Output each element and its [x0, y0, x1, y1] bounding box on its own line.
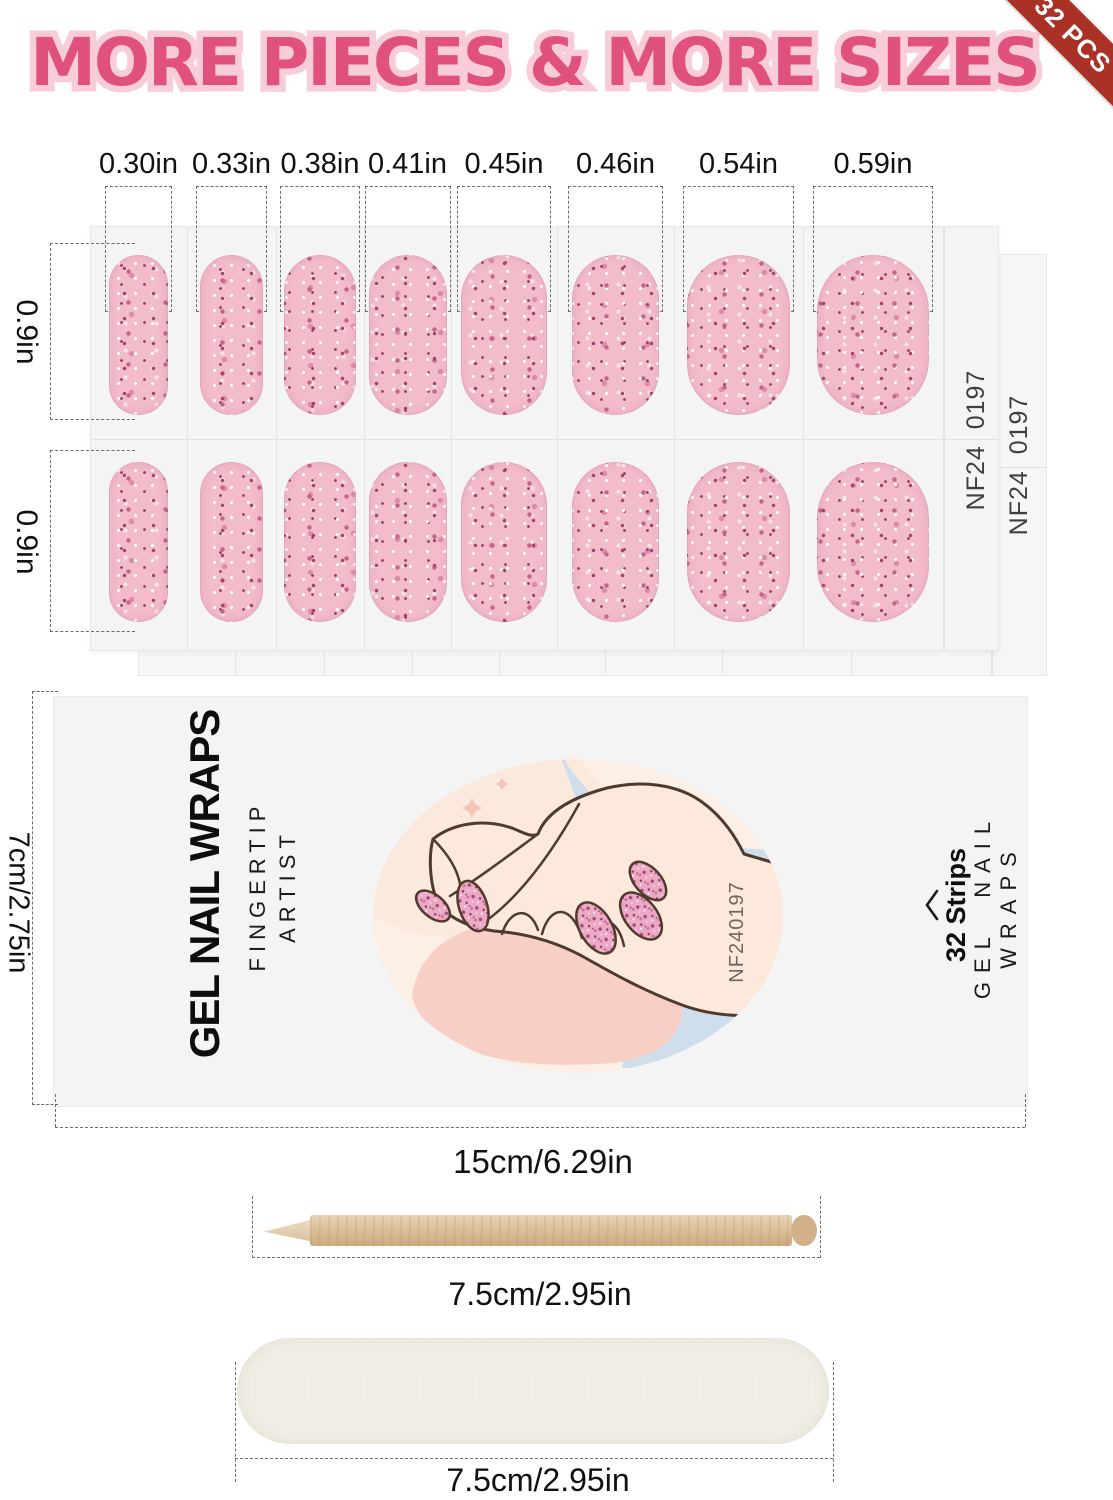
file-measure-line	[235, 1458, 833, 1459]
width-measure-tick-left	[55, 1094, 56, 1127]
nail-wrap	[200, 255, 263, 415]
brand-subtitle: FINGERTIP ARTIST	[243, 746, 273, 1026]
width-measure-line	[55, 1127, 1025, 1128]
row-height-bracket-1	[50, 243, 135, 420]
nail-wrap	[572, 462, 659, 622]
cuticle-stick	[264, 1215, 817, 1246]
nail-wrap	[461, 462, 547, 622]
nail-wrap	[687, 462, 790, 622]
nail-wrap	[687, 255, 790, 415]
size-label: 0.45in	[456, 148, 552, 182]
hand-illustration: NF240197	[372, 758, 784, 1074]
nail-wrap	[284, 255, 356, 415]
width-measure-tick-right	[1025, 1094, 1026, 1127]
file-measure-tick-left	[235, 1362, 236, 1482]
brand-title: GEL NAIL WRAPS	[175, 684, 235, 1084]
chevron-up-icon	[924, 888, 939, 922]
size-label: 0.46in	[568, 148, 664, 182]
nail-wrap	[817, 462, 929, 622]
nail-wrap	[369, 255, 447, 415]
stick-length-label: 7.5cm/2.95in	[340, 1276, 740, 1313]
sheet-code-label-front: NF24 0197	[961, 355, 991, 525]
stick-shaft	[310, 1215, 792, 1246]
height-measure-tick-top	[32, 691, 58, 692]
package-height-label: 7cm/2.75in	[2, 823, 35, 983]
page-title: MORE PIECES & MORE SIZES MORE PIECES & M…	[0, 24, 1091, 124]
size-label: 0.30in	[91, 148, 187, 182]
package-width-label: 15cm/6.29in	[343, 1143, 743, 1181]
stick-measure-line	[252, 1257, 820, 1258]
size-label: 0.33in	[184, 148, 280, 182]
sheet-code-label-back: NF24 0197	[1004, 380, 1034, 550]
row-height-label-1: 0.9in	[9, 252, 43, 412]
row-height-bracket-2	[50, 450, 135, 632]
nail-wrap	[284, 462, 356, 622]
nail-wrap	[369, 462, 447, 622]
nail-file	[237, 1338, 829, 1444]
nail-wrap	[461, 255, 547, 415]
file-measure-tick-right	[833, 1362, 834, 1482]
size-label: 0.54in	[691, 148, 787, 182]
nail-wrap	[572, 255, 659, 415]
stick-end-cap	[791, 1215, 817, 1246]
stick-tip	[264, 1219, 314, 1242]
strips-count-label: 32 Strips	[941, 848, 972, 962]
package-side-label: GEL NAIL WRAPS	[970, 756, 996, 1056]
product-code-label: NF240197	[726, 881, 748, 982]
stick-measure-tick-right	[820, 1196, 821, 1258]
size-label: 0.38in	[272, 148, 368, 182]
nail-wrap	[200, 462, 263, 622]
stick-measure-tick-left	[252, 1196, 253, 1258]
size-label: 0.59in	[825, 148, 921, 182]
file-length-label: 7.5cm/2.95in	[338, 1462, 738, 1499]
nail-wrap	[817, 255, 929, 415]
row-height-label-2: 0.9in	[9, 462, 43, 622]
size-label: 0.41in	[360, 148, 456, 182]
page-title-text: MORE PIECES & MORE SIZES	[0, 24, 1091, 101]
